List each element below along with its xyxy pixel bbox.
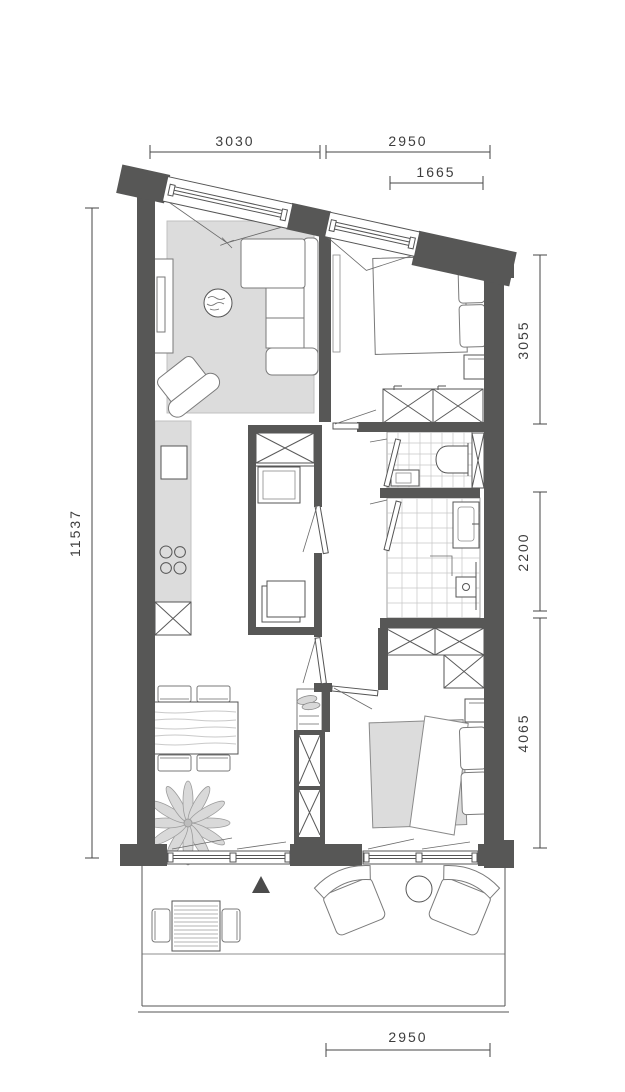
dining-chair (158, 755, 191, 771)
pillow (459, 727, 486, 770)
tv (157, 277, 165, 332)
tv-cabinet (153, 259, 173, 353)
duct-shaft (472, 433, 484, 488)
sliding-door-bedroom (363, 839, 478, 864)
kitchen-sink (161, 446, 187, 479)
balcony-chair (222, 909, 240, 942)
storage-boxes (262, 581, 305, 622)
toilet-sink (391, 470, 419, 486)
dimension-label-bottom: 2950 (388, 1029, 427, 1045)
pillow (459, 305, 486, 348)
balcony (138, 859, 509, 1012)
bed-2 (369, 714, 489, 838)
door-closet (303, 505, 328, 553)
wardrobe-2 (385, 628, 484, 688)
wardrobe-1 (383, 386, 483, 423)
coffee-table (204, 289, 232, 317)
toilet-fixture (436, 446, 468, 473)
dimension-label-top-right: 2950 (388, 133, 427, 149)
floor-plan-canvas: 3030 2950 1665 11537 3055 2200 4065 2950 (0, 0, 625, 1092)
wall-bottom (120, 844, 167, 866)
dimension-label-right-bottom: 4065 (515, 713, 531, 752)
door-dining (303, 638, 326, 684)
floor-plan: 3030 2950 1665 11537 3055 2200 4065 2950 (0, 0, 625, 1092)
dining-chair (197, 755, 230, 771)
washbasin (453, 502, 479, 548)
wall-right (484, 250, 504, 868)
toilet-room (387, 432, 484, 488)
bathroom (387, 498, 480, 618)
dimension-label-left: 11537 (67, 509, 83, 557)
shower (430, 556, 476, 610)
kitchen (155, 421, 191, 635)
entrance-arrow (252, 876, 270, 893)
dining-area (146, 686, 238, 865)
dining-table (152, 702, 238, 754)
dining-chair (158, 686, 191, 702)
balcony-chair (152, 909, 170, 942)
wall-left (137, 182, 155, 865)
kitchen-cabinet (155, 602, 191, 635)
bedroom-1 (333, 253, 492, 423)
washing-machine (258, 467, 300, 503)
hall-shelf (296, 689, 322, 732)
dimension-label-right-top: 3055 (515, 320, 531, 359)
balcony-table (172, 901, 220, 951)
dining-chair (197, 686, 230, 702)
wall-living-bedroom (319, 212, 331, 422)
utility-closet (256, 433, 314, 622)
dimension-label-window: 1665 (416, 164, 455, 180)
side-table (406, 876, 432, 902)
lounge-chair (424, 859, 502, 938)
dimension-label-right-middle: 2200 (515, 532, 531, 571)
dimension-label-top-left: 3030 (215, 133, 254, 149)
door-bedroom-2 (332, 686, 378, 709)
lounge-chair (312, 859, 390, 938)
curtain-track (333, 255, 340, 352)
closet-column (299, 735, 320, 835)
